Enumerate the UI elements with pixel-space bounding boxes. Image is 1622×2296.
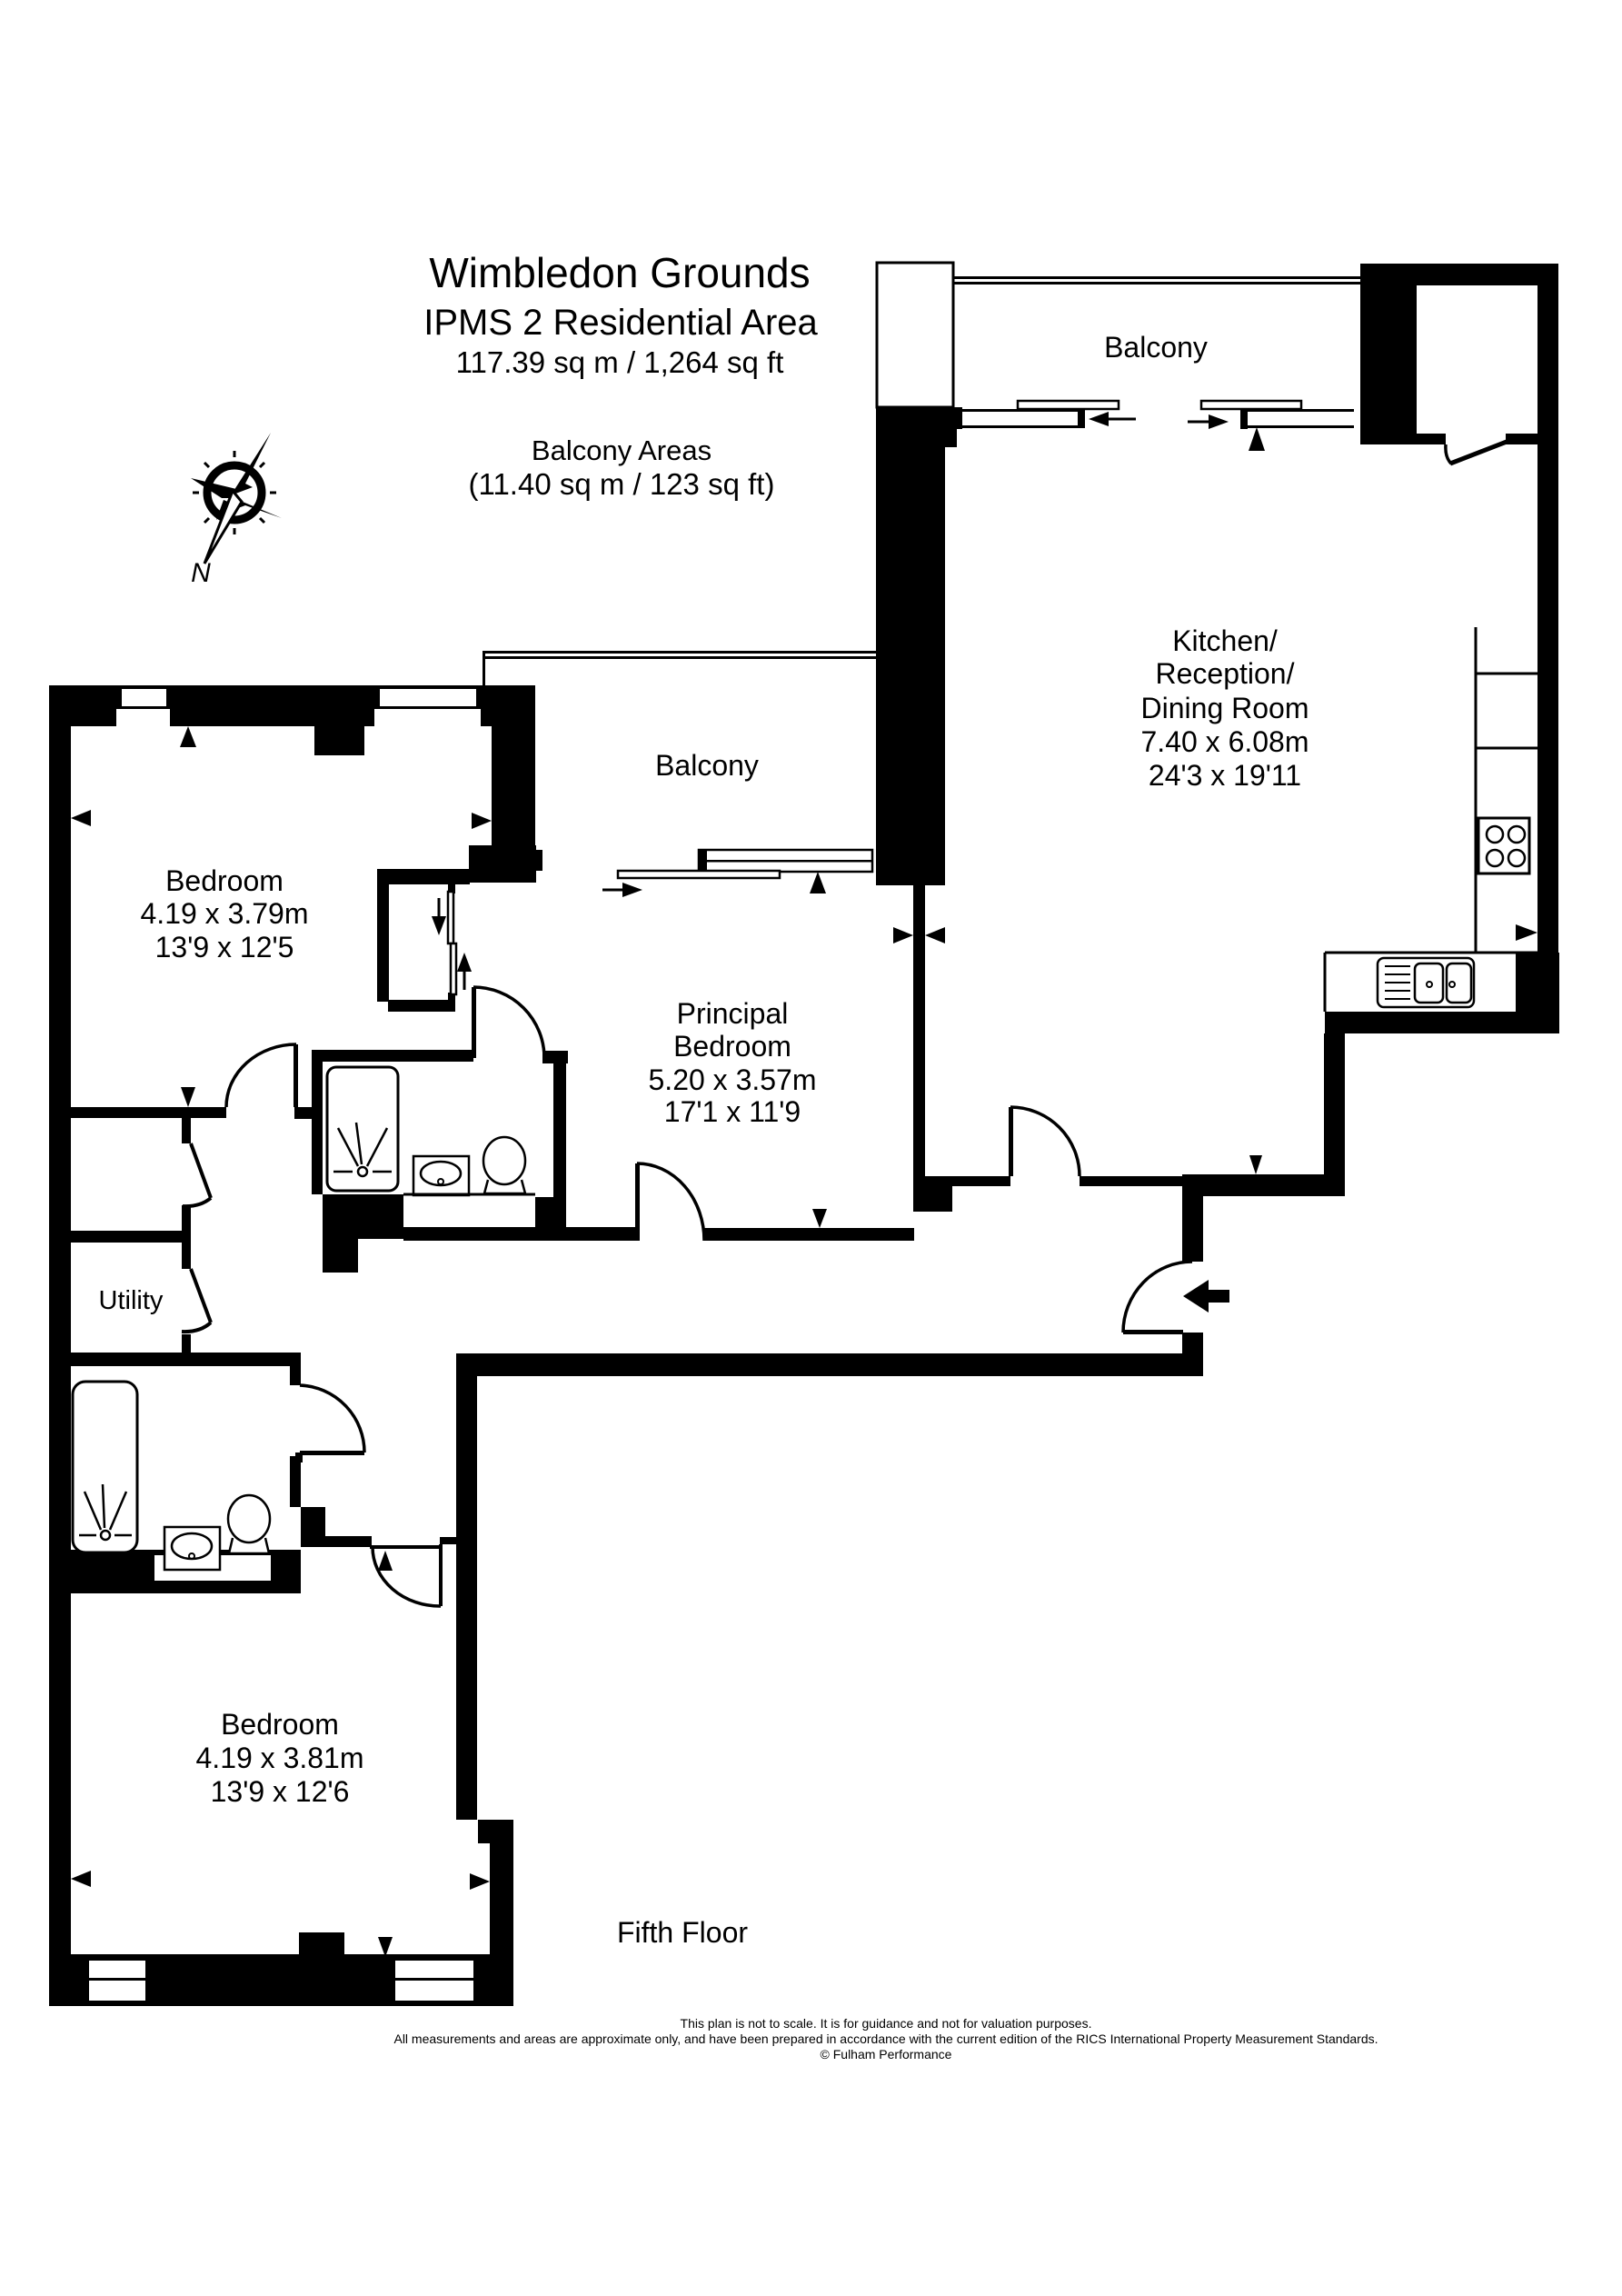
- svg-text:© Fulham Performance: © Fulham Performance: [821, 2047, 952, 2061]
- svg-text:Balcony: Balcony: [1104, 331, 1208, 364]
- svg-text:Reception/: Reception/: [1156, 657, 1295, 690]
- svg-text:Kitchen/: Kitchen/: [1172, 624, 1278, 657]
- svg-text:13'9 x 12'5: 13'9 x 12'5: [155, 931, 294, 963]
- svg-text:All measurements and areas are: All measurements and areas are approxima…: [393, 2031, 1378, 2046]
- svg-text:Bedroom: Bedroom: [165, 864, 284, 897]
- svg-text:13'9 x 12'6: 13'9 x 12'6: [211, 1775, 350, 1808]
- svg-text:7.40 x 6.08m: 7.40 x 6.08m: [1141, 725, 1309, 758]
- svg-text:Fifth Floor: Fifth Floor: [617, 1916, 748, 1949]
- svg-text:Balcony: Balcony: [655, 749, 759, 782]
- svg-text:Bedroom: Bedroom: [221, 1708, 339, 1741]
- svg-text:Bedroom: Bedroom: [673, 1030, 791, 1063]
- svg-text:4.19 x 3.81m: 4.19 x 3.81m: [196, 1742, 364, 1774]
- svg-text:5.20 x 3.57m: 5.20 x 3.57m: [649, 1063, 817, 1096]
- svg-text:N: N: [191, 558, 211, 588]
- svg-text:117.39 sq m / 1,264 sq ft: 117.39 sq m / 1,264 sq ft: [456, 345, 784, 379]
- svg-text:24'3 x 19'11: 24'3 x 19'11: [1149, 759, 1301, 792]
- svg-text:This plan is not to scale. It: This plan is not to scale. It is for gui…: [681, 2016, 1092, 2031]
- svg-text:Principal: Principal: [677, 997, 789, 1030]
- svg-text:(11.40 sq m / 123 sq ft): (11.40 sq m / 123 sq ft): [469, 467, 775, 501]
- svg-text:IPMS 2 Residential Area: IPMS 2 Residential Area: [423, 303, 818, 343]
- svg-text:4.19 x 3.79m: 4.19 x 3.79m: [141, 897, 309, 930]
- svg-text:Balcony Areas: Balcony Areas: [532, 434, 711, 466]
- svg-text:Dining Room: Dining Room: [1141, 692, 1309, 724]
- svg-text:17'1 x 11'9: 17'1 x 11'9: [664, 1095, 801, 1128]
- svg-text:Wimbledon Grounds: Wimbledon Grounds: [429, 249, 810, 296]
- svg-text:Utility: Utility: [99, 1286, 164, 1315]
